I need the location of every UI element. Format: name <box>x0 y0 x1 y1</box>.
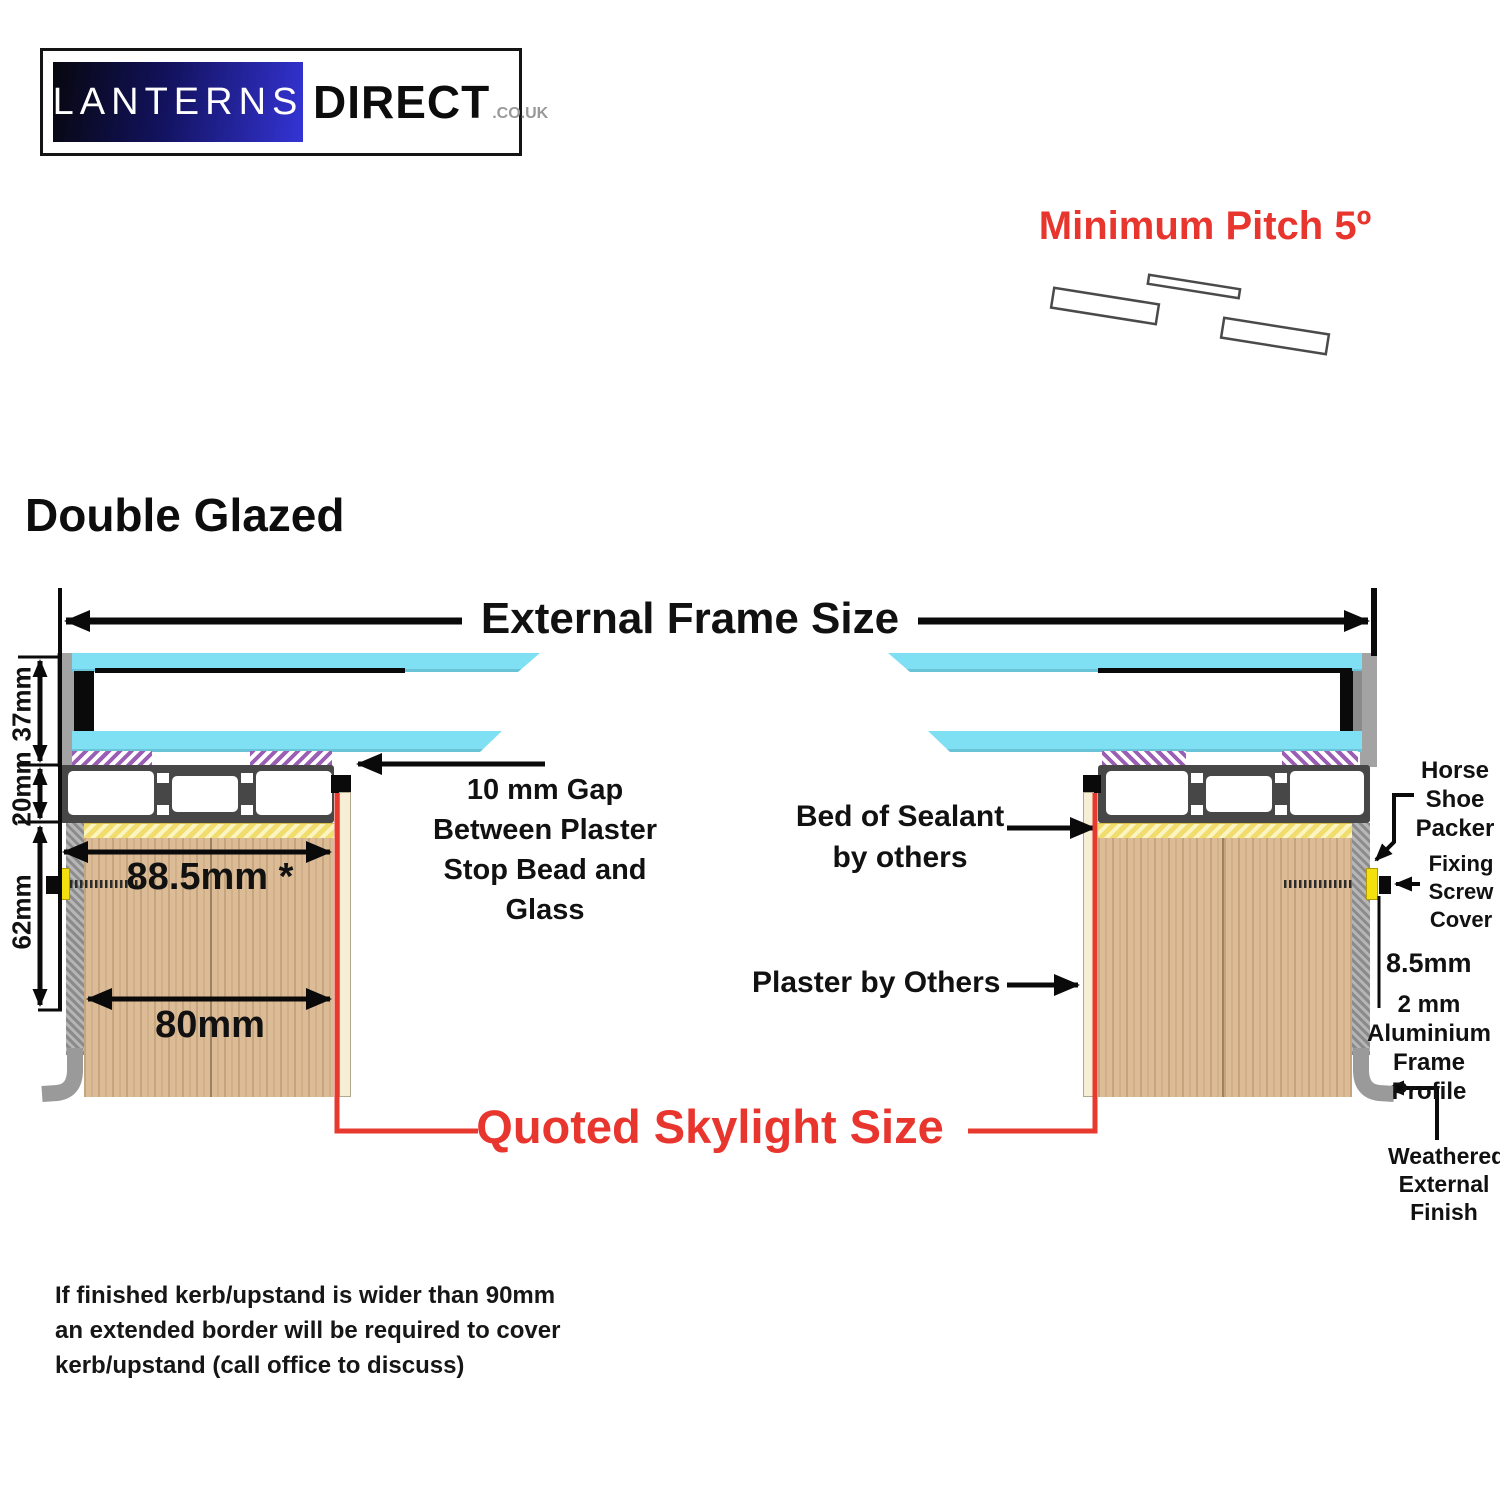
kerb-footnote: If finished kerb/upstand is wider than 9… <box>55 1278 560 1383</box>
horseshoe-leader <box>1376 795 1414 860</box>
gap-annotation: 10 mm Gap Between Plaster Stop Bead and … <box>423 770 667 930</box>
dim-20-label: 20mm <box>7 763 38 827</box>
skylight-technical-diagram-page: LANTERNS DIRECT .CO.UK Minimum Pitch 5º … <box>0 0 1500 1500</box>
quoted-skylight-size-label: Quoted Skylight Size <box>430 1099 990 1154</box>
weathered-annotation: Weathered External Finish <box>1388 1142 1500 1226</box>
dim-62-label: 62mm <box>7 886 38 950</box>
horseshoe-annotation: Horse Shoe Packer <box>1410 756 1500 843</box>
frame-profile-annotation: 2 mm Aluminium Frame Profile <box>1358 990 1500 1106</box>
sealant-annotation: Bed of Sealant by others <box>788 796 1012 878</box>
dim-885-label: 88.5mm * <box>88 856 332 899</box>
plaster-annotation: Plaster by Others <box>752 966 1004 1000</box>
dimension-and-leader-lines <box>0 0 1500 1500</box>
dim-80-label: 80mm <box>88 1004 332 1047</box>
fixing-cover-annotation: Fixing Screw Cover <box>1418 850 1500 934</box>
dim-37-label: 37mm <box>7 678 38 742</box>
frame-curve-left <box>42 1048 75 1094</box>
external-frame-size-label: External Frame Size <box>470 594 910 644</box>
dim-85-label: 8.5mm <box>1386 948 1472 979</box>
